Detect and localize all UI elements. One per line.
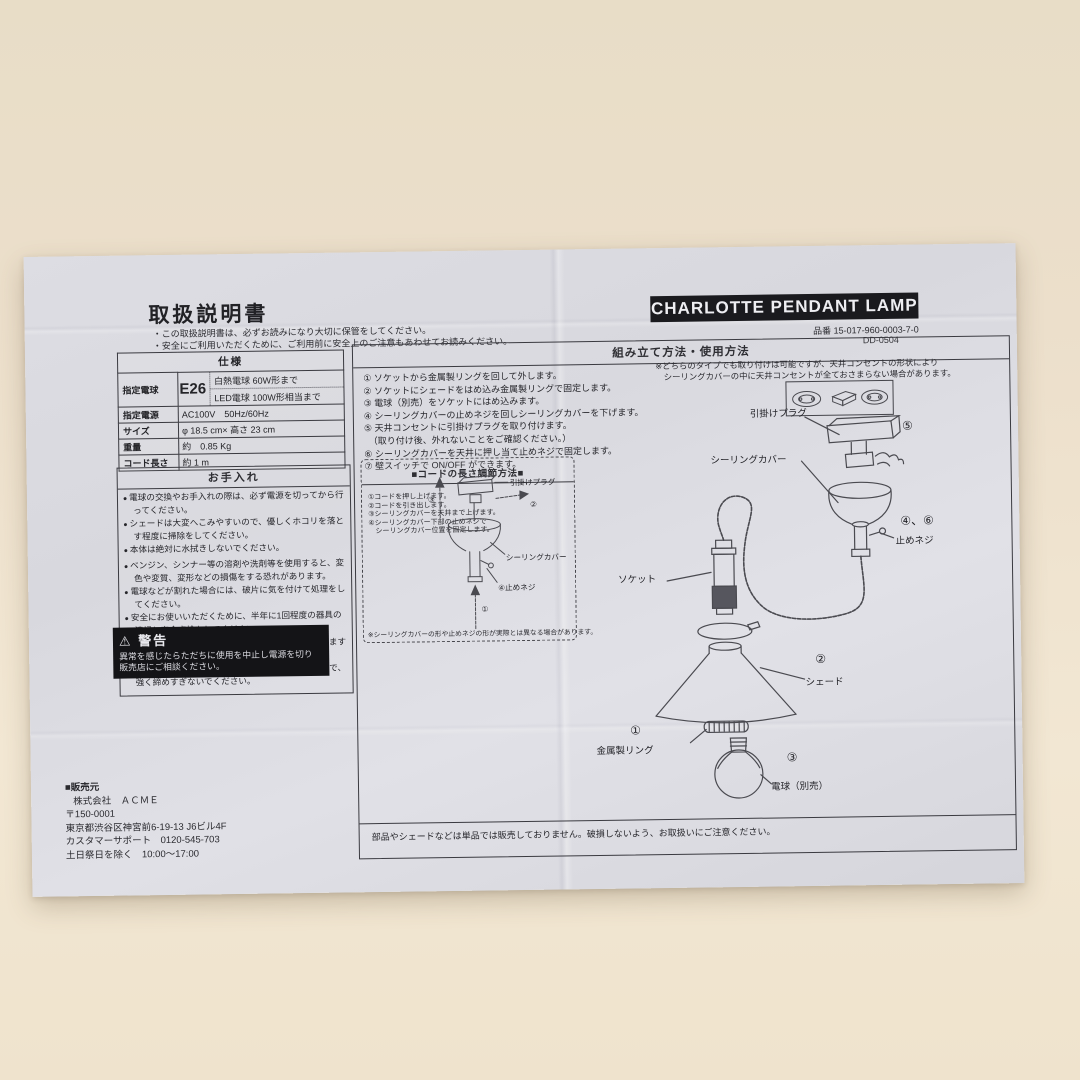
shade-label: シェード xyxy=(805,674,843,689)
marker-2: ② xyxy=(815,652,826,666)
spec-weight-label: 重量 xyxy=(119,438,179,455)
cord-screw-label: ④止めネジ xyxy=(498,582,535,594)
warning-title: 警告 xyxy=(138,633,168,648)
spec-bulb-line1: 白熱電球 60W形まで xyxy=(210,371,344,390)
cord-marker-raise: ③ xyxy=(428,495,435,504)
seller-support: カスタマーサポート 0120-545-703 xyxy=(66,833,227,849)
marker-1: ① xyxy=(630,723,641,737)
part-number-value: 15-017-960-0003-7-0 xyxy=(834,324,919,335)
bulb-label: 電球（別売） xyxy=(771,778,828,793)
paper-sheet: 取扱説明書 ・この取扱説明書は、必ずお読みになり大切に保管をしてください。 ・安… xyxy=(24,243,1025,897)
cord-marker-up: ① xyxy=(481,605,488,614)
manual-title: 取扱説明書 xyxy=(148,298,268,330)
warning-box: ⚠ 警告 異常を感じたらただちに使用を中止し電源を切り 販売店にご相談ください。 xyxy=(113,625,330,679)
lamp-exploded-diagram xyxy=(589,414,1015,830)
cover-label: シーリングカバー xyxy=(710,451,786,466)
product-name-banner: CHARLOTTE PENDANT LAMP xyxy=(650,292,918,322)
care-item: シェードは大変へこみやすいので、優しくホコリを落とす程度に掃除をしてください。 xyxy=(123,516,345,542)
spec-bulb-line2: LED電球 100W形相当まで xyxy=(210,388,344,406)
spec-table: 仕様 指定電球 E26 白熱電球 60W形まで LED電球 100W形相当まで … xyxy=(117,349,346,471)
assembly-section: 組み立て方法・使用方法 ① ソケットから金属製リングを回して外します。 ② ソケ… xyxy=(352,335,1017,859)
care-item: ベンジン、シンナー等の溶剤や洗剤等を使用すると、変色や変質、変形などの損傷をする… xyxy=(124,557,346,583)
spec-bulb-type: E26 xyxy=(178,372,209,405)
spec-power-label: 指定電源 xyxy=(118,406,178,423)
spec-bulb-label: 指定電球 xyxy=(118,372,178,407)
seller-info: ■販売元 株式会社 ＡＣＭＥ 〒150-0001 東京都渋谷区神宮前6-19-1… xyxy=(65,779,227,862)
marker-3: ③ xyxy=(787,750,798,764)
warning-line2: 販売店にご相談ください。 xyxy=(119,660,323,674)
cord-adjust-box: ■コードの長さ調節方法■ ①コードを押し上げます。 ②コードを引き出します。 ③… xyxy=(360,456,577,643)
socket-label: ソケット xyxy=(618,571,656,586)
cord-cover-label: シーリングカバー xyxy=(506,551,567,563)
spec-bulb-value: E26 白熱電球 60W形まで LED電球 100W形相当まで xyxy=(178,371,343,406)
ceiling-type-note: ※どちらのタイプでも取り付けは可能ですが、天井コンセントの形状により シーリング… xyxy=(655,357,956,382)
warning-icon: ⚠ xyxy=(119,633,133,648)
cord-plug-label: 引掛けプラグ xyxy=(510,477,556,489)
cord-screw-text: 止めネジ xyxy=(505,583,535,592)
care-item: 電球の交換やお手入れの際は、必ず電源を切ってから行ってください。 xyxy=(123,489,345,515)
seller-hours: 土日祭日を除く 10:00〜17:00 xyxy=(66,847,227,863)
photo-background: 取扱説明書 ・この取扱説明書は、必ずお読みになり大切に保管をしてください。 ・安… xyxy=(0,0,1080,1080)
spec-size-label: サイズ xyxy=(118,422,178,439)
cord-marker-pull: ② xyxy=(530,500,537,509)
care-item: 電球などが割れた場合には、破片に気を付けて処理をしてください。 xyxy=(124,584,346,610)
assembly-footer-note: 部品やシェードなどは単品では販売しておりません。破損しないよう、お取扱いにご注意… xyxy=(372,825,776,844)
ring-label: 金属製リング xyxy=(596,742,653,757)
marker-4-6: ④、⑥ xyxy=(900,511,934,528)
care-item: 本体は絶対に水拭きしないでください。 xyxy=(124,542,346,558)
part-number-label: 品番 xyxy=(813,326,831,336)
screw-label: 止めネジ xyxy=(896,532,934,547)
